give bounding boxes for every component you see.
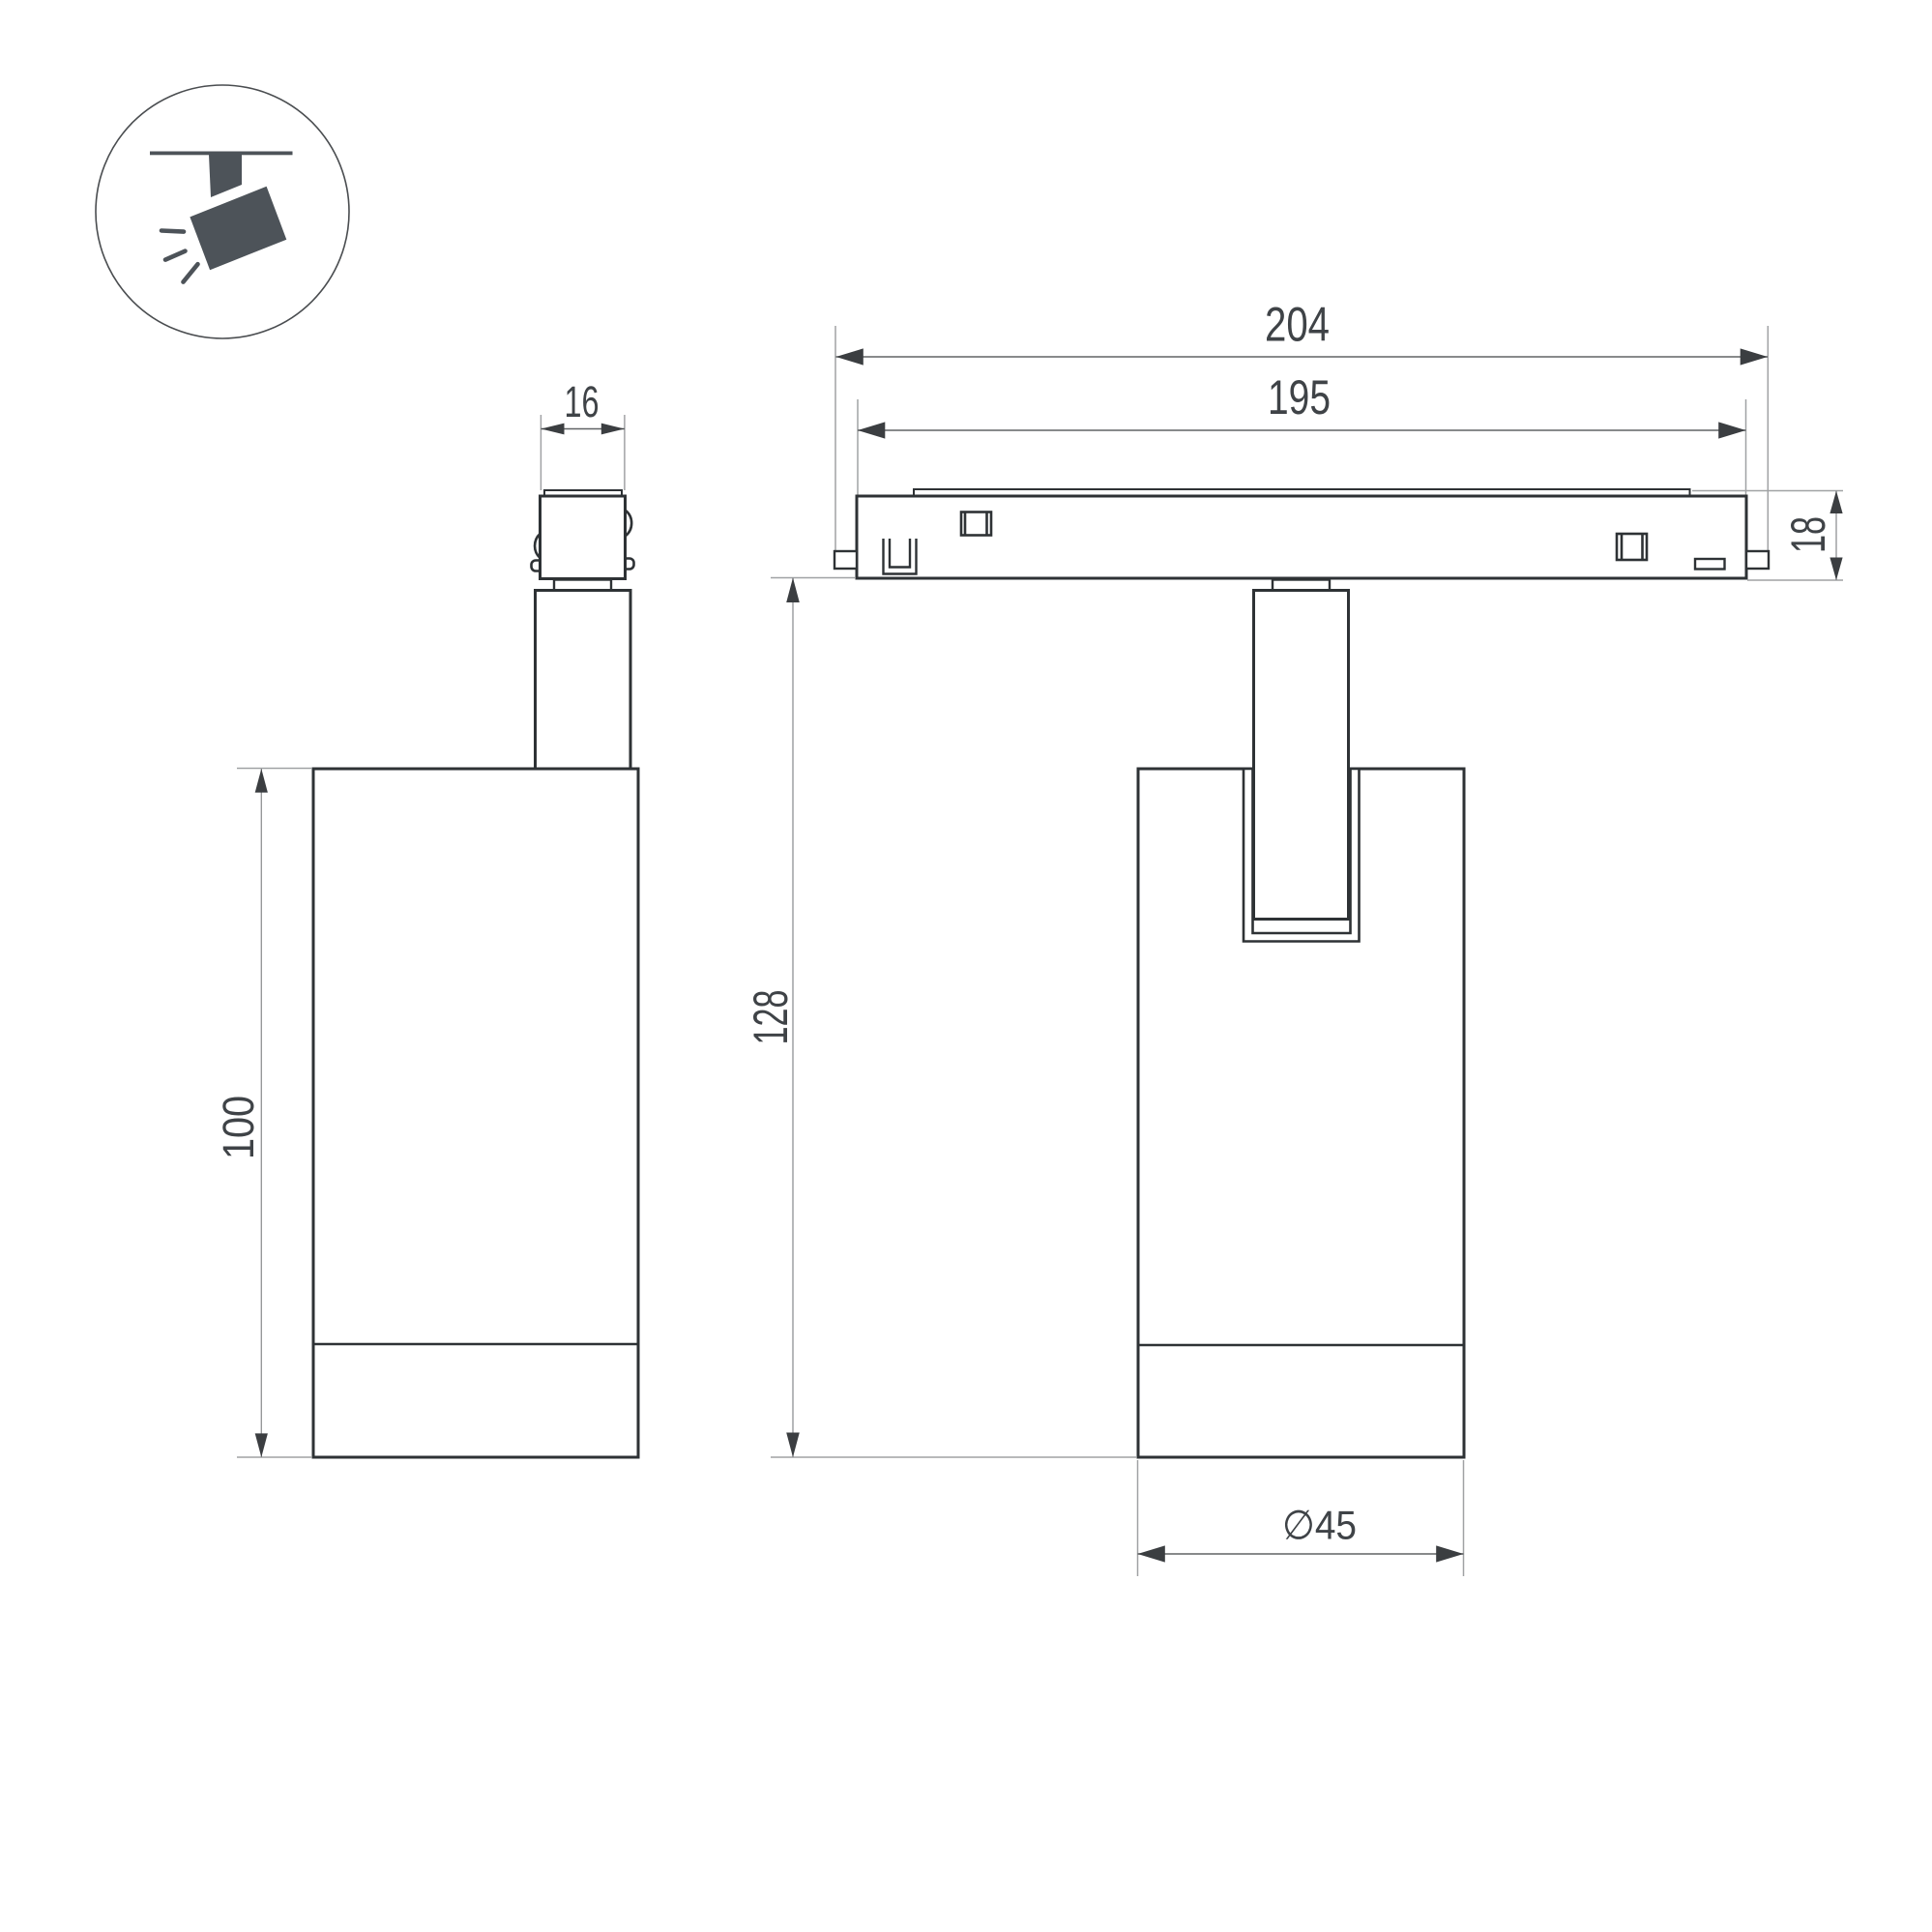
svg-text:∅45: ∅45: [1282, 1503, 1357, 1548]
svg-text:16: 16: [565, 377, 600, 426]
svg-text:128: 128: [744, 990, 798, 1045]
svg-text:195: 195: [1268, 370, 1331, 424]
svg-text:204: 204: [1265, 298, 1330, 352]
svg-text:18: 18: [1781, 516, 1835, 553]
svg-text:100: 100: [214, 1096, 263, 1159]
